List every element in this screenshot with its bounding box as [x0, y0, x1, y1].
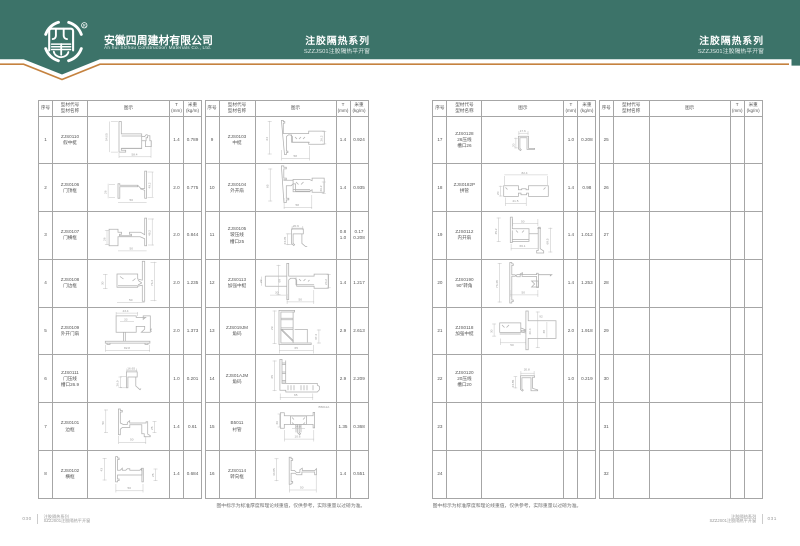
svg-text:R: R	[83, 23, 86, 28]
